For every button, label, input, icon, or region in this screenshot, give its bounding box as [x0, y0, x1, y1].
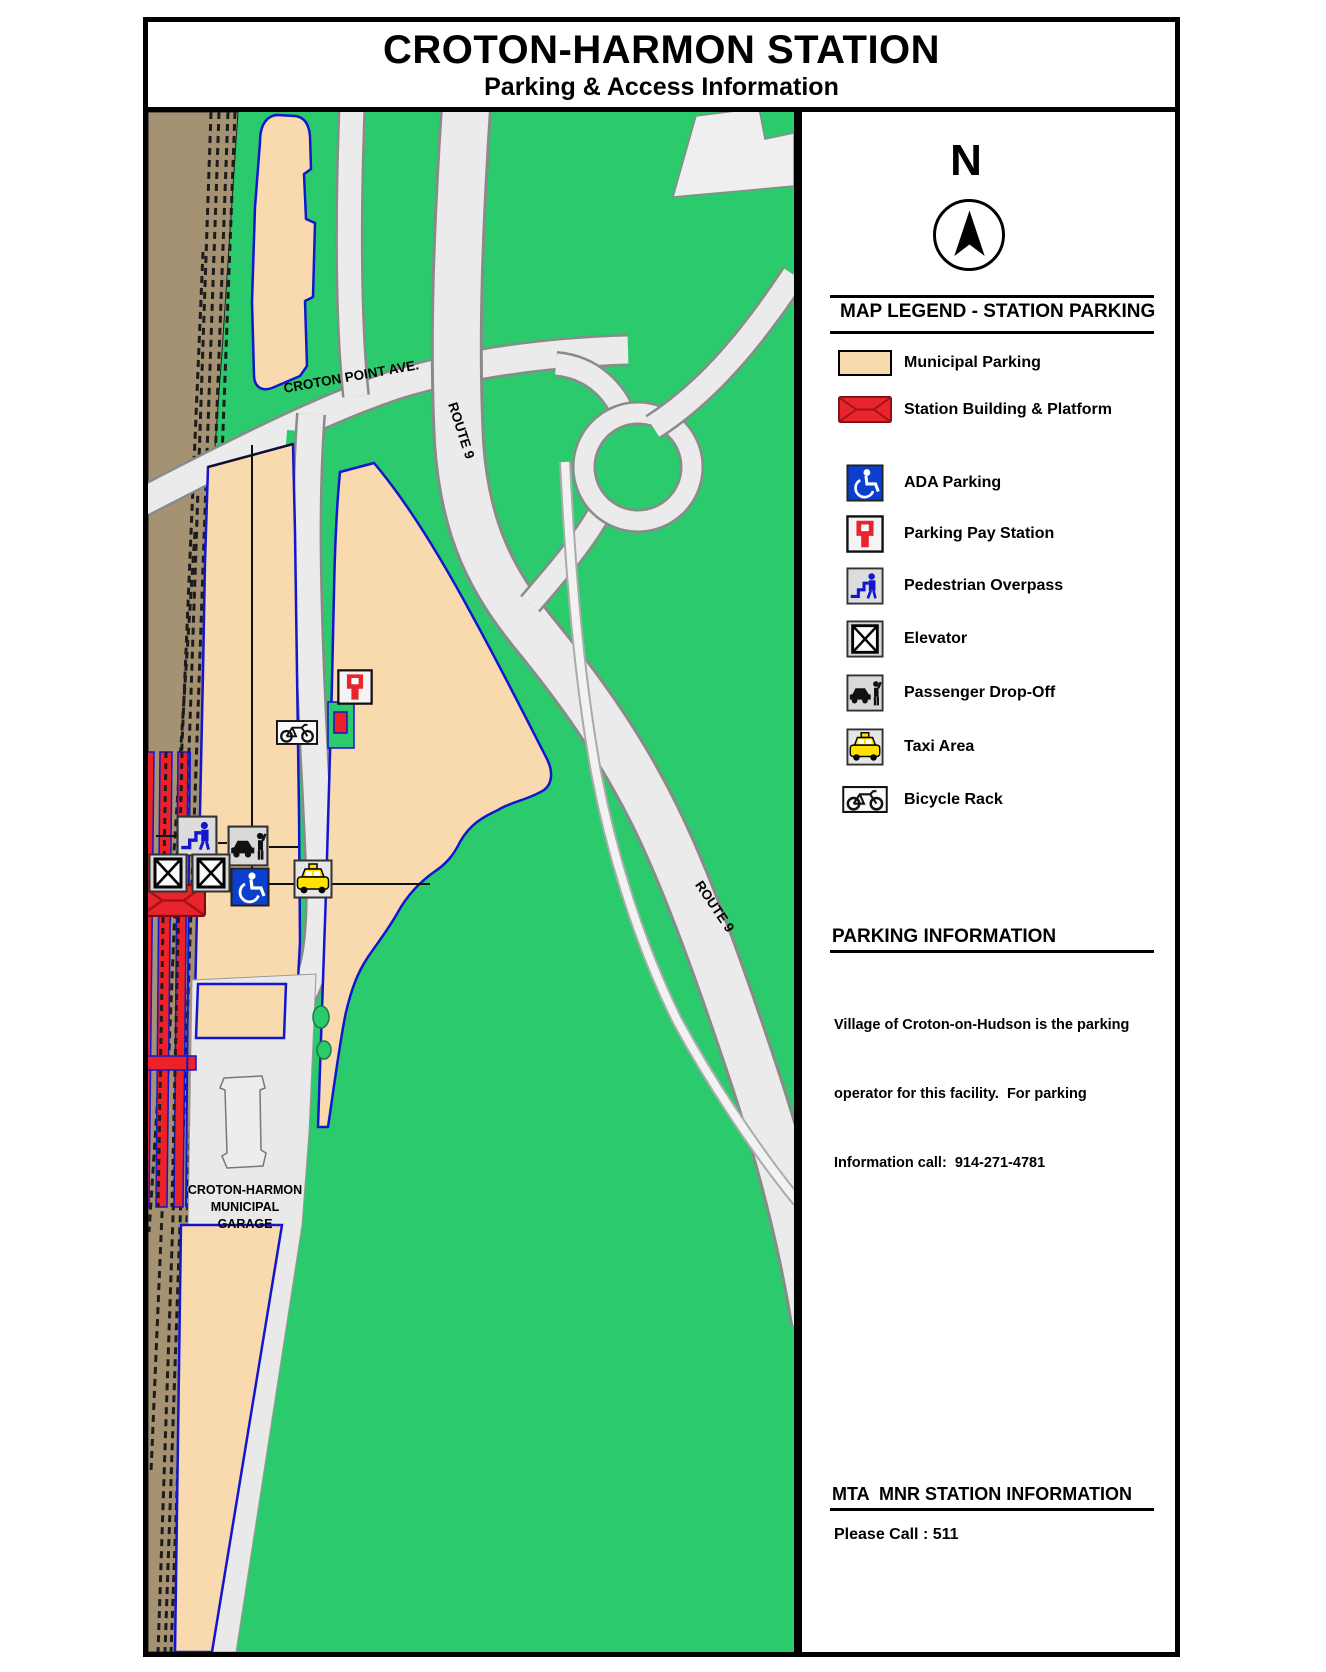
content-frame: CROTON-HARMON MUNICIPAL GARAGE	[143, 107, 1180, 1657]
compass-north-label: N	[933, 136, 999, 186]
parking-pay-station-icon	[846, 515, 884, 553]
north-access-road	[349, 112, 356, 396]
legend-row-bike: Bicycle Rack	[836, 786, 1003, 813]
passenger-drop-off-icon	[229, 827, 268, 866]
passenger-drop-off-icon	[846, 674, 884, 712]
poster-canvas: CROTON-HARMON STATION Parking & Access I…	[0, 0, 1326, 1672]
parking-info-line: Information call: 914-271-4781	[834, 1152, 1129, 1175]
mta-info-body: Please Call : 511	[834, 1526, 959, 1544]
pedestrian-overpass-icon	[846, 567, 884, 605]
parking-info-line: operator for this facility. For parking	[834, 1083, 1129, 1106]
elevator-icon	[846, 620, 884, 658]
tree-patch	[317, 1041, 331, 1059]
parking-info-header: PARKING INFORMATION	[832, 926, 1056, 948]
north-arrow-icon	[940, 206, 999, 265]
pedestrian-overpass-icon	[178, 817, 217, 856]
garage-upper-lot	[196, 984, 286, 1038]
legend-row-dropoff: Passenger Drop-Off	[836, 674, 1055, 712]
legend-row-taxi: Taxi Area	[836, 728, 974, 766]
legend-row-ped: Pedestrian Overpass	[836, 567, 1063, 605]
taxi-area-icon	[295, 861, 332, 898]
map-panel-divider	[794, 112, 802, 1652]
bicycle-rack-icon	[277, 721, 317, 744]
legend-label: Taxi Area	[904, 738, 974, 756]
legend-header: MAP LEGEND - STATION PARKING	[840, 301, 1155, 323]
compass-icon	[933, 199, 1005, 271]
legend-row-elevator: Elevator	[836, 620, 967, 658]
tree-patch	[313, 1006, 329, 1028]
trackside-shelter	[334, 712, 347, 733]
legend-rule-top	[830, 295, 1154, 298]
elevator-icon	[193, 855, 230, 892]
mta-info-header: MTA MNR STATION INFORMATION	[832, 1484, 1132, 1505]
legend-row-pay: Parking Pay Station	[836, 515, 1054, 553]
municipal-parking-swatch	[838, 350, 892, 376]
parking-pay-station-icon	[338, 670, 371, 703]
station-map-svg: CROTON-HARMON MUNICIPAL GARAGE	[148, 112, 794, 1652]
page-subtitle: Parking & Access Information	[148, 73, 1175, 102]
station-building-icon	[838, 396, 892, 423]
bicycle-rack-icon	[842, 786, 888, 813]
parking-info-body: Village of Croton-on-Hudson is the parki…	[834, 968, 1129, 1221]
platform-crossover	[148, 1056, 196, 1070]
parking-info-rule	[830, 950, 1154, 953]
taxi-area-icon	[846, 728, 884, 766]
ada-parking-icon	[846, 464, 884, 502]
legend-label: Municipal Parking	[904, 354, 1041, 372]
legend-label: Station Building & Platform	[904, 401, 1112, 419]
ada-parking-icon	[232, 869, 269, 906]
legend-label: ADA Parking	[904, 474, 1001, 492]
north-parking-lot	[252, 115, 315, 389]
title-box: CROTON-HARMON STATION Parking & Access I…	[143, 17, 1180, 112]
info-panel: N MAP LEGEND - STATION PARKING Municipal…	[802, 112, 1175, 1652]
legend-label: Elevator	[904, 630, 967, 648]
parking-info-line: Village of Croton-on-Hudson is the parki…	[834, 1014, 1129, 1037]
legend-label: Bicycle Rack	[904, 791, 1003, 809]
legend-rule-bottom	[830, 331, 1154, 334]
legend-label: Passenger Drop-Off	[904, 684, 1055, 702]
station-map: CROTON-HARMON MUNICIPAL GARAGE	[148, 112, 794, 1652]
garage-label-line2: MUNICIPAL	[211, 1200, 280, 1214]
legend-row-municipal: Municipal Parking	[836, 350, 1041, 376]
garage-label-line1: CROTON-HARMON	[188, 1183, 302, 1197]
garage-label-line3: GARAGE	[218, 1217, 273, 1231]
garage-building-outline	[220, 1076, 266, 1168]
legend-row-station: Station Building & Platform	[836, 396, 1112, 423]
legend-label: Pedestrian Overpass	[904, 577, 1063, 595]
elevator-icon	[150, 855, 187, 892]
legend-row-ada: ADA Parking	[836, 464, 1001, 502]
legend-label: Parking Pay Station	[904, 525, 1054, 543]
mta-info-rule	[830, 1508, 1154, 1511]
page-title: CROTON-HARMON STATION	[148, 28, 1175, 73]
